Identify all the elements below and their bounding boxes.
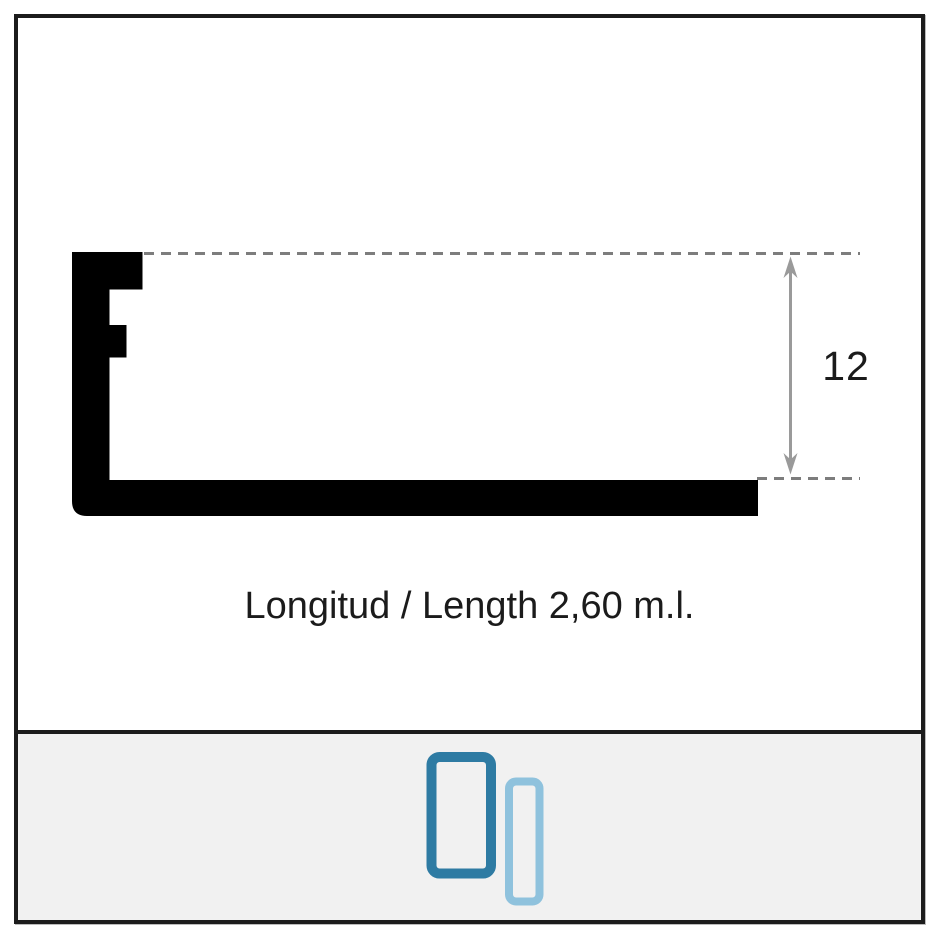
length-label: Longitud / Length 2,60 m.l.: [18, 585, 921, 627]
dimension-value-label: 12: [810, 344, 882, 388]
profile-orientation-large-icon: [432, 757, 492, 874]
profile-diagram: [0, 0, 940, 940]
profile-cross-section-shape: [72, 252, 758, 516]
dimension-arrow: [784, 257, 798, 475]
profile-orientation-small-icon: [509, 782, 540, 902]
diagram-canvas: 12 Longitud / Length 2,60 m.l.: [0, 0, 940, 940]
